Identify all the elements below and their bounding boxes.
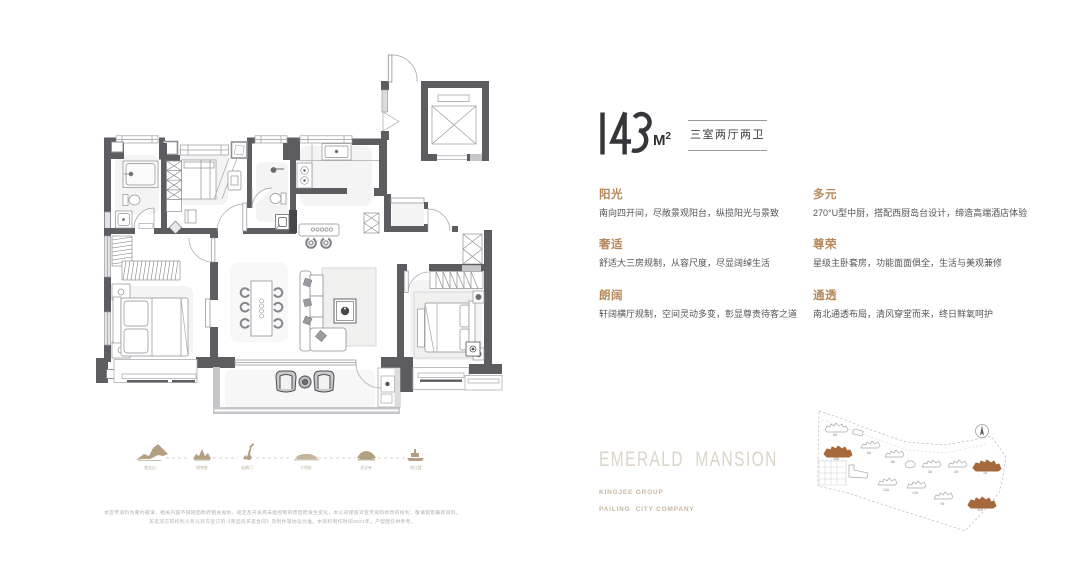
svg-text:8#: 8# <box>833 433 837 437</box>
svg-text:紫金山: 紫金山 <box>144 465 156 470</box>
svg-text:3#: 3# <box>928 470 932 474</box>
svg-text:仙鹤门: 仙鹤门 <box>241 465 253 470</box>
svg-text:15#: 15# <box>833 457 839 461</box>
svg-text:七桥瓮: 七桥瓮 <box>300 465 312 470</box>
svg-text:7#: 7# <box>940 502 944 506</box>
svg-text:5#: 5# <box>891 460 895 464</box>
svg-text:11#: 11# <box>977 508 983 512</box>
svg-text:12#: 12# <box>912 491 918 495</box>
svg-text:6#: 6# <box>867 451 871 455</box>
svg-text:13#: 13# <box>883 488 889 492</box>
svg-text:1#: 1# <box>983 471 987 475</box>
svg-text:阅江楼: 阅江楼 <box>410 465 422 470</box>
svg-text:明孝陵: 明孝陵 <box>196 465 208 470</box>
svg-text:灵谷寺: 灵谷寺 <box>360 465 372 470</box>
svg-text:2#: 2# <box>954 470 958 474</box>
